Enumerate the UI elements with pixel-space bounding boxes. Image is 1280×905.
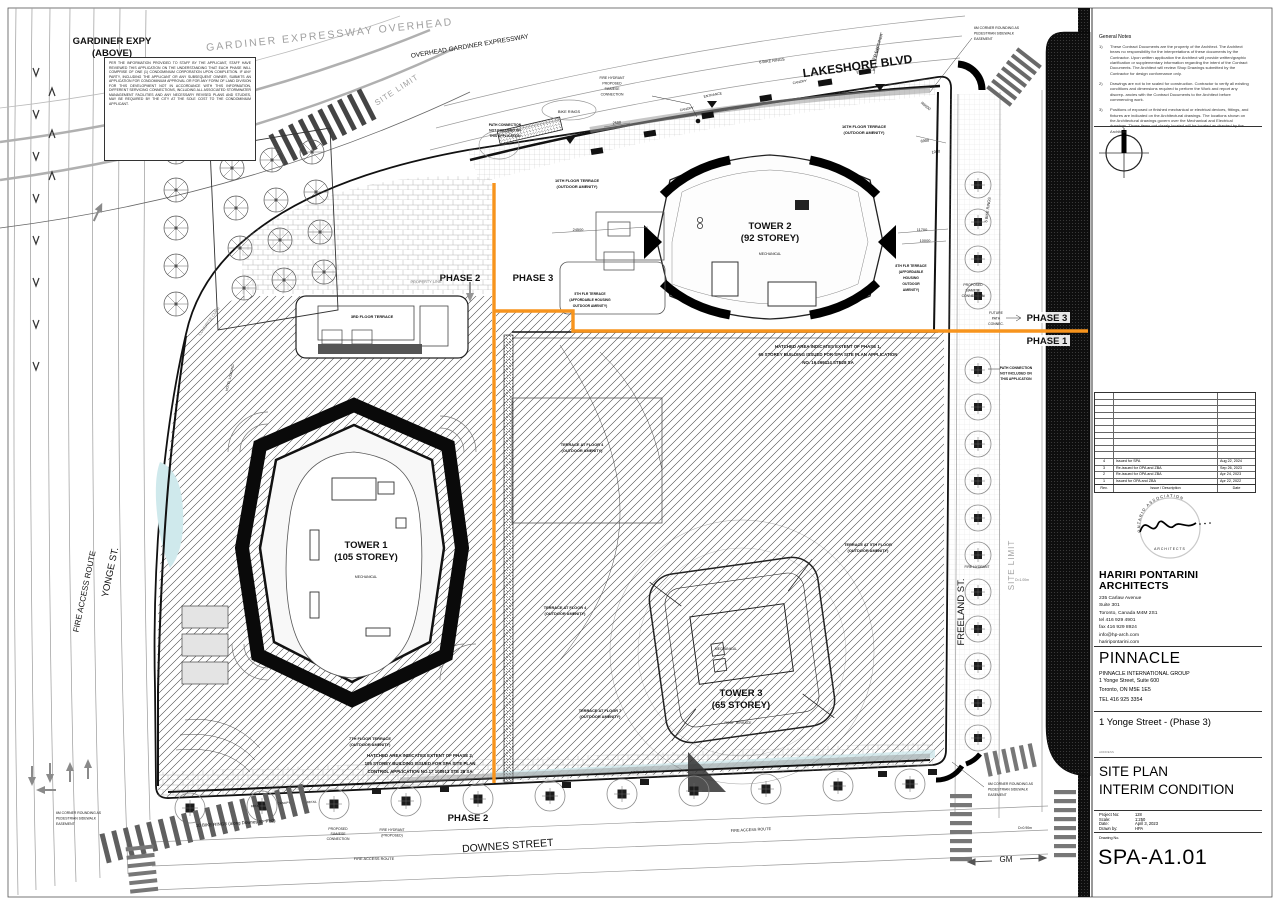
architect-line-2: Suite 301 bbox=[1099, 602, 1198, 609]
loading-stalls bbox=[182, 606, 228, 684]
terrace-8th-l1: 8TH FLR TERRACE bbox=[895, 264, 927, 268]
tower2-name: TOWER 2 bbox=[748, 221, 791, 232]
freeland-st-label: FREELAND ST. bbox=[956, 578, 967, 645]
client-line-1: 1 Yonge Street, Suite 600 bbox=[1099, 677, 1190, 687]
dim-10000: 10000 bbox=[920, 238, 932, 243]
terrace-5th-aff-l2: (AFFORDABLE HOUSING bbox=[569, 298, 611, 302]
terrace-fl4a-l2: (OUTDOOR AMENITY) bbox=[562, 448, 604, 453]
gardiner-expy-label: GARDINER EXPY bbox=[73, 36, 152, 47]
phase3-right-label: PHASE 3 bbox=[1027, 313, 1068, 324]
phase2-bottom-label: PHASE 2 bbox=[448, 813, 489, 824]
terrace-10th-l1: 10TH FLOOR TERRACE bbox=[555, 178, 600, 183]
general-note-3-num: 3) bbox=[1099, 107, 1106, 134]
drawing-no-label: Drawing No. bbox=[1099, 836, 1119, 840]
terrace-fl7-l1: TERRACE AT FLOOR 7 bbox=[579, 708, 622, 713]
corner-rounding-bl-l1: 6M CORNER ROUNDING AS bbox=[56, 811, 102, 815]
client-subname: PINNACLE INTERNATIONAL GROUP bbox=[1099, 671, 1190, 677]
architect-name-2: ARCHITECTS bbox=[1099, 581, 1198, 592]
revision-row-1: 1Issued for OPA and ZBAApr 22, 2022 bbox=[1095, 478, 1255, 485]
general-notes: General Notes 1) These Contract Document… bbox=[1099, 34, 1251, 139]
hatch-phase1-note-l1: HATCHED AREA INDICATES EXTENT OF PHASE 1… bbox=[775, 344, 881, 349]
architect-line-6[interactable]: info@hp-arch.com bbox=[1099, 632, 1198, 639]
siamese-bottom-l2: SIAMESE bbox=[330, 832, 346, 836]
client-block: PINNACLE PINNACLE INTERNATIONAL GROUP 1 … bbox=[1099, 650, 1190, 706]
corner-rounding-br-l2: PEDESTRIAN SIDEWALK bbox=[988, 788, 1029, 792]
project-meta: Project No:128 Scale:1:250 Date:April 3,… bbox=[1099, 813, 1235, 832]
client-line-2: Toronto, ON M5E 1E5 bbox=[1099, 686, 1190, 696]
tower3-roof-terrace: ROOF TERRACE bbox=[725, 721, 753, 725]
terrace-fl4b-l2: (OUTDOOR AMENITY) bbox=[545, 611, 587, 616]
general-note-2-text: Drawings are not to be scaled for constr… bbox=[1110, 81, 1251, 102]
retail1-label: RETAIL bbox=[251, 804, 262, 809]
siamese-bottom-l3: CONNECTION bbox=[327, 837, 350, 841]
project-title: 1 Yonge Street - (Phase 3) bbox=[1099, 717, 1211, 728]
fire-access-bottom1-label: FIRE ACCESS ROUTE bbox=[354, 856, 395, 861]
terrace-7th-l1: 7TH FLOOR TERRACE bbox=[349, 736, 391, 741]
sheet-title: SITE PLAN INTERIM CONDITION bbox=[1099, 763, 1234, 799]
general-note-1: 1) These Contract Documents are the prop… bbox=[1099, 44, 1251, 76]
future-path-l2: PATH bbox=[992, 317, 1001, 321]
bike-rings-6-top-label: 6 BIKE RINGS bbox=[759, 56, 785, 64]
hatch-phase2-note-l3: CONTROL APPLICATION NO.17 108913 STE 28 … bbox=[367, 769, 473, 774]
downes-street-label: DOWNES STREET bbox=[462, 837, 555, 855]
gm-label: GM bbox=[1000, 855, 1013, 864]
yonge-st-label: YONGE ST. bbox=[100, 547, 121, 599]
path-conn-top-l3: THIS APPLICATION bbox=[489, 134, 521, 138]
architect-line-1: 235 Carlaw Avenue bbox=[1099, 595, 1198, 602]
corner-rounding-bl-l3: EASEMENT bbox=[56, 822, 75, 826]
canopy-top2-label: CANOPY bbox=[792, 79, 808, 86]
phase3-mid-label: PHASE 3 bbox=[513, 273, 554, 284]
hatch-phase1-note-l2: 65 STOREY BUILDING ISSUED FOR SPA SITE P… bbox=[759, 352, 898, 357]
hatch-phase2-note-l1: HATCHED AREA INDICATES EXTENT OF PHASE 2… bbox=[367, 753, 473, 758]
site-plan-sheet: LAKESHORE BLVD DOWNES STREET YONGE ST. F… bbox=[0, 0, 1280, 905]
tower1-name: TOWER 1 bbox=[344, 540, 388, 551]
dim-24500: 24500 bbox=[573, 227, 585, 232]
architect-line-4: tel 416 929 4901 bbox=[1099, 617, 1198, 624]
terrace-8th-l2: (AFFORDABLE bbox=[899, 270, 924, 274]
terrace-5th-aff-l1: 5TH FLR TERRACE bbox=[574, 292, 606, 296]
terrace-5thfl-l1: TERRACE AT 5TH FLOOR bbox=[844, 542, 892, 547]
phase2-mid-label: PHASE 2 bbox=[440, 273, 481, 284]
property-line-label: PROPERTY LINE bbox=[410, 279, 441, 285]
revision-row-4: 4Issued for SPAAug 22, 2024 bbox=[1095, 458, 1255, 465]
corner-rounding-tr-l1: 6M CORNER ROUNDING AS bbox=[974, 26, 1020, 30]
revision-row-3: 3Re-issued for OPA and ZBASep 26, 2023 bbox=[1095, 465, 1255, 472]
terrace-16th-l2: (OUTDOOR AMENITY) bbox=[844, 130, 886, 135]
hatch-phase2-note-l2: 105 STOREY BUILDING ISSUED FOR SPA SITE … bbox=[365, 761, 476, 766]
siamese-bottom-l1: PROPOSED bbox=[328, 827, 348, 831]
terrace-8th-l5: AMENITY) bbox=[903, 288, 919, 292]
titleblock-rule-2 bbox=[1094, 646, 1262, 647]
architect-address: 235 Carlaw Avenue Suite 301 Toronto, Can… bbox=[1099, 595, 1198, 647]
future-path-l3: CONNEC. bbox=[988, 322, 1004, 326]
revision-row-2: 2Re-issued for OPA and ZBAApr 24, 2023 bbox=[1095, 471, 1255, 478]
podium-terrace-block bbox=[296, 296, 468, 358]
crosswalk-bottomright-east bbox=[1054, 790, 1076, 857]
terrace-10th-l2: (OUTDOOR AMENITY) bbox=[557, 184, 599, 189]
tower2-storeys: (92 STOREY) bbox=[741, 233, 799, 244]
titleblock-rule-3 bbox=[1094, 711, 1262, 712]
sheet-title-line1: SITE PLAN bbox=[1099, 763, 1234, 781]
terrace-16th-l1: 16TH FLOOR TERRACE bbox=[842, 124, 887, 129]
hydrant-bottom-l2: (PROPOSED) bbox=[381, 834, 402, 838]
titleblock: General Notes 1) These Contract Document… bbox=[1094, 0, 1276, 905]
drawing-number: SPA-A1.01 bbox=[1098, 845, 1207, 870]
path-conn-top-l2: NOT INCLUDED ON bbox=[489, 129, 521, 133]
terrace-8th-l3: HOUSING bbox=[903, 276, 919, 280]
architect-line-5: fax 416 929 8924 bbox=[1099, 624, 1198, 631]
path-conn-right-l3: THIS APPLICATION bbox=[1000, 377, 1032, 381]
terrace-8th-l4: OUTDOOR bbox=[902, 282, 920, 286]
tower3-storeys: (65 STOREY) bbox=[712, 700, 770, 711]
tower1-mechanical: MECHANICAL bbox=[355, 575, 377, 579]
siamese-right-l3: CONNECTION bbox=[962, 294, 985, 298]
address-label: ADDRESS bbox=[1099, 750, 1114, 754]
tower1-storeys: (105 STOREY) bbox=[334, 552, 398, 563]
fire-hydrant-top-l1: FIRE HYDRANT bbox=[599, 76, 624, 80]
general-note-1-text: These Contract Documents are the propert… bbox=[1110, 44, 1251, 76]
bike-rings-top-label: BIKE RINGS bbox=[558, 109, 581, 114]
titleblock-rule-5 bbox=[1094, 810, 1262, 811]
lakeshore-blvd-label: LAKESHORE BLVD bbox=[802, 52, 914, 80]
general-note-1-num: 1) bbox=[1099, 44, 1106, 76]
corner-rounding-tr-l3: EASEMENT bbox=[974, 37, 993, 41]
dim-11700: 11700 bbox=[917, 227, 928, 232]
hydrant-bottom-l1: FIRE HYDRANT bbox=[379, 828, 404, 832]
tower3-name: TOWER 3 bbox=[719, 688, 762, 699]
general-note-2: 2) Drawings are not to be scaled for con… bbox=[1099, 81, 1251, 102]
terrace-7th-l2: (OUTDOOR AMENITY) bbox=[350, 742, 392, 747]
general-note-3: 3) Positions of exposed or finished mech… bbox=[1099, 107, 1251, 134]
terrace-5th-aff-l3: OUTDOOR AMENITY) bbox=[573, 304, 608, 308]
general-note-2-num: 2) bbox=[1099, 81, 1106, 102]
retail2-label: RETAIL bbox=[307, 800, 318, 805]
site-limit-right-label: SITE LIMIT bbox=[1007, 540, 1016, 590]
overhead-gardiner-label: OVERHEAD GARDINER EXPRESSWAY bbox=[410, 33, 529, 60]
tower2-mechanical: MECHANICAL bbox=[759, 252, 781, 256]
terrace-5thfl-l2: (OUTDOOR AMENITY) bbox=[848, 548, 890, 553]
revision-header: Rev.Issue / DescriptionDate bbox=[1095, 484, 1255, 491]
revision-table: 4Issued for SPAAug 22, 2024 3Re-issued f… bbox=[1094, 392, 1256, 493]
siamese-right-l2: SIAMESE bbox=[965, 289, 981, 293]
fire-hydrant-right-label: FIRE HYDRANT bbox=[964, 565, 989, 569]
path-conn-right-l1: PATH CONNECTION bbox=[1000, 366, 1033, 370]
architect-block: HARIRI PONTARINI ARCHITECTS 235 Carlaw A… bbox=[1099, 570, 1198, 647]
fire-access-bottom2-label: FIRE ACCESS ROUTE bbox=[731, 826, 772, 833]
corner-rounding-tr-l2: PEDESTRIAN SIDEWALK bbox=[974, 32, 1015, 36]
gardiner-condo-note: PER THE INFORMATION PROVIDED TO STAFF BY… bbox=[104, 57, 256, 161]
hatch-phase1-note-l3: NO. 16 269114 STE28 SA bbox=[802, 360, 854, 365]
corner-rounding-br-l1: 6M CORNER ROUNDING AS bbox=[988, 782, 1034, 786]
siamese-right-l1: PROPOSED bbox=[963, 283, 983, 287]
canopy-bottom-label: CANOPY bbox=[278, 801, 291, 806]
terrace-fl4a-l1: TERRACE AT FLOOR 4 bbox=[561, 442, 604, 447]
general-notes-title: General Notes bbox=[1099, 34, 1251, 40]
titleblock-rule-6 bbox=[1094, 832, 1262, 833]
d090-label: D=0.90m bbox=[1018, 826, 1032, 830]
path-conn-top-l1: PATH CONNECTION bbox=[489, 123, 522, 127]
corner-rounding-bl-l2: PEDESTRIAN SIDEWALK bbox=[56, 817, 97, 821]
fire-hydrant-top-l2: PROPOSED bbox=[602, 82, 622, 86]
client-name: PINNACLE bbox=[1099, 650, 1190, 668]
east-building-band bbox=[1046, 32, 1090, 776]
fire-hydrant-top-l3: SIAMESE bbox=[604, 87, 620, 91]
corner-rounding-br-l3: EASEMENT bbox=[988, 793, 1007, 797]
tower3-mechanical: MECHANICAL bbox=[715, 647, 737, 651]
site-limit-topleft-label: SITE LIMIT bbox=[373, 72, 420, 107]
general-note-3-text: Positions of exposed or finished mechani… bbox=[1110, 107, 1251, 134]
path-conn-right-l2: NOT INCLUDED ON bbox=[1000, 372, 1032, 376]
fire-access-route-left-label: FIRE ACCESS ROUTE bbox=[72, 550, 98, 633]
architect-line-3: Toronto, Canada M4M 2S1 bbox=[1099, 610, 1198, 617]
freeland-boulevard-pavers bbox=[948, 92, 1002, 750]
crosswalk-bottomright-west bbox=[950, 794, 972, 861]
titleblock-rule-4 bbox=[1094, 757, 1262, 758]
phase1-right-label: PHASE 1 bbox=[1027, 336, 1068, 347]
d100-label: D=1.00m bbox=[1015, 578, 1029, 582]
terrace-3rd-label: 3RD FLOOR TERRACE bbox=[351, 314, 394, 319]
client-line-3: TEL 416 925 3354 bbox=[1099, 696, 1190, 706]
terrace-fl7-l2: (OUTDOOR AMENITY) bbox=[580, 714, 622, 719]
entrance-top-label: ENTRANCE bbox=[703, 91, 723, 99]
dim-2500: 2500 bbox=[612, 119, 622, 125]
fire-hydrant-top-l4: CONNECTION bbox=[601, 93, 624, 97]
sheet-title-line2: INTERIM CONDITION bbox=[1099, 781, 1234, 799]
titleblock-rule-1 bbox=[1094, 126, 1262, 127]
gardiner-striped-band bbox=[268, 88, 376, 166]
future-path-l1: FUTURE bbox=[989, 311, 1003, 315]
terrace-fl4b-l1: TERRACE AT FLOOR 4 bbox=[544, 605, 587, 610]
